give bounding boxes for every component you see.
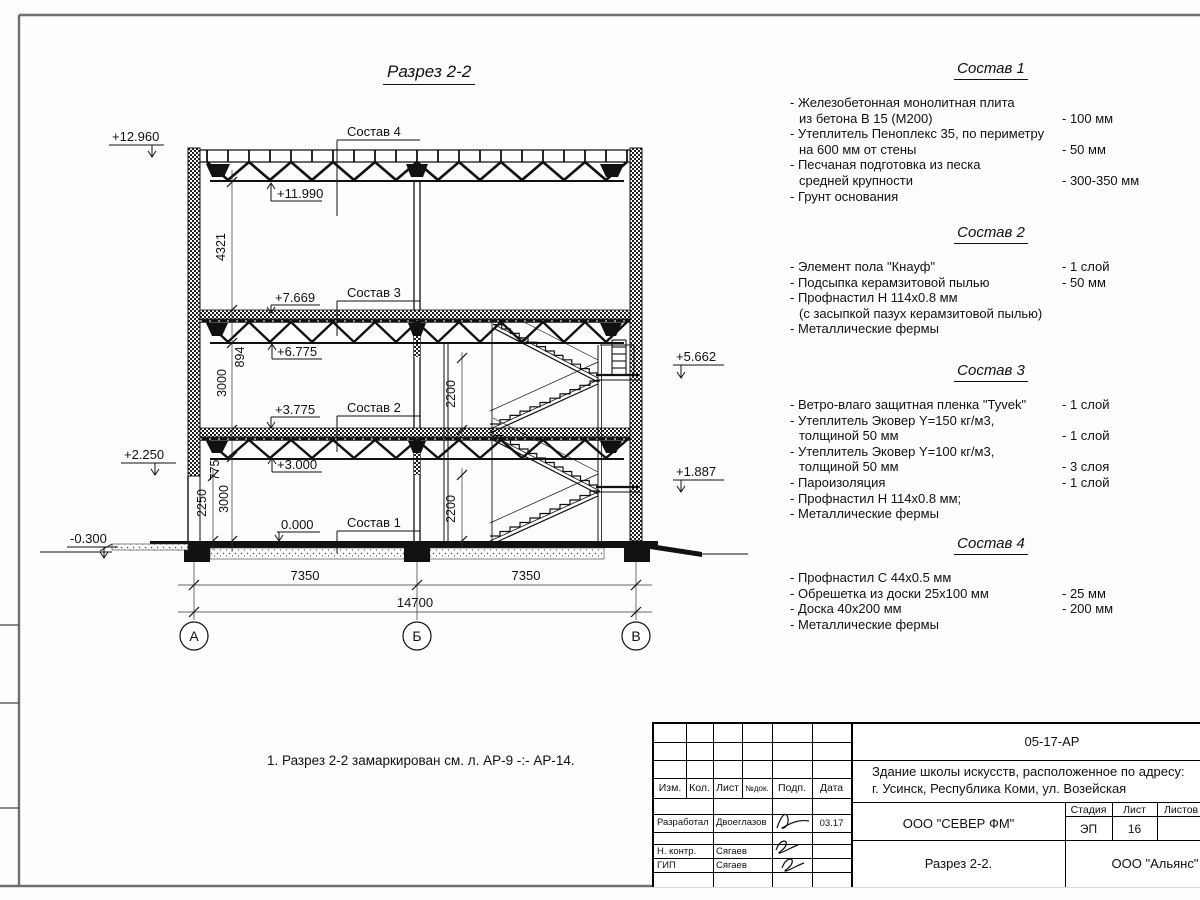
dim-7350-right: 7350 (512, 568, 541, 583)
dim-14700: 14700 (397, 595, 433, 610)
comp-line: - Обрешетка из доски 25х100 мм (790, 586, 1062, 602)
tb-sheet-title: Разрез 2-2. (852, 856, 1065, 871)
svg-text:+3.000: +3.000 (277, 457, 317, 472)
dim-7350-left: 7350 (291, 568, 320, 583)
svg-text:+3.775: +3.775 (275, 402, 315, 417)
signature-developer (774, 808, 812, 834)
comp-line: толщиной 50 мм (790, 428, 1062, 444)
dim-3000-lower: 3000 (217, 485, 231, 513)
title-block: Изм. Кол. Лист №док. Подп. Дата Разработ… (652, 722, 1200, 887)
svg-text:+1.887: +1.887 (676, 464, 716, 479)
svg-text:+5.662: +5.662 (676, 349, 716, 364)
comp-line: - Утеплитель Пеноплекс 35, по периметру (790, 126, 1062, 142)
signature-gip (770, 836, 814, 880)
elevation-ground: 0.000 (275, 517, 320, 541)
elevation-stair-lower: +1.887 (673, 464, 724, 492)
tb-name-developer: Двоеглазов (716, 817, 767, 828)
comp-line: - Ветро-влаго защитная пленка "Tyvek" (790, 397, 1062, 413)
frame-margin-cells (0, 625, 19, 808)
tb-sheets-label: Листов (1164, 804, 1198, 816)
dim-2200-upper: 2200 (444, 380, 458, 408)
comp-line: (с засыпкой пазух керамзитовой пылью) (790, 306, 1062, 322)
comp-line: - Профнастил Н 114х0.8 мм (790, 290, 1062, 306)
comp-line: - Металлические фермы (790, 617, 1062, 633)
tb-stage-label: Стадия (1065, 804, 1112, 816)
elevation-parapet: +12.960 (109, 129, 164, 157)
tb-col-list: Лист (713, 782, 742, 794)
tb-col-ndok: №док. (742, 784, 772, 793)
callout-sostav-2: Состав 2 (347, 400, 401, 415)
comp-line: на 600 мм от стены (790, 142, 1062, 158)
dim-775: 775 (208, 460, 222, 481)
composition-block-1: Состав 1 - Железобетонная монолитная пли… (790, 60, 1192, 204)
comp-line: из бетона В 15 (М200) (790, 111, 1062, 127)
tb-col-podp: Подп. (772, 782, 812, 794)
svg-text:+6.775: +6.775 (277, 344, 317, 359)
tb-name-gip: Сягаев (716, 860, 747, 871)
comp-line: - Профнастил Н 114х0.8 мм; (790, 491, 1062, 507)
callout-sostav-3: Состав 3 (347, 285, 401, 300)
elevation-roof-bottom: +11.990 (267, 183, 323, 201)
svg-text:+2.250: +2.250 (124, 447, 164, 462)
svg-text:+7.669: +7.669 (275, 290, 315, 305)
composition-1-title: Состав 1 (954, 60, 1028, 80)
callout-sostav-4: Состав 4 (347, 124, 401, 139)
axis-b-label: Б (412, 628, 421, 644)
tb-date-developer: 03.17 (812, 818, 851, 829)
comp-line: - Элемент пола "Кнауф" (790, 259, 1062, 275)
tb-contractor: ООО "Альянс" (1065, 856, 1200, 871)
comp-line: средней крупности (790, 173, 1062, 189)
drawing-title: Разрез 2-2 (383, 62, 475, 85)
comp-line: - Грунт основания (790, 189, 1062, 205)
elevation-stair-upper: +5.662 (673, 349, 724, 378)
composition-3-title: Состав 3 (954, 362, 1028, 382)
composition-callouts: Состав 4 Состав 3 Состав 2 Состав 1 (347, 124, 401, 530)
composition-block-3: Состав 3 - Ветро-влаго защитная пленка "… (790, 362, 1192, 522)
tb-org: ООО "СЕВЕР ФМ" (852, 816, 1065, 831)
svg-text:+11.990: +11.990 (277, 186, 323, 201)
roof-truss (200, 150, 630, 181)
comp-line: - Металлические фермы (790, 321, 1062, 337)
comp-line: - Профнастил С 44х0.5 мм (790, 570, 1062, 586)
svg-text:0.000: 0.000 (281, 517, 314, 532)
drawing-note: 1. Разрез 2-2 замаркирован см. л. АР-9 -… (267, 753, 575, 768)
axis-bubbles: А Б В (180, 622, 650, 650)
tb-col-data: Дата (812, 782, 851, 794)
bottom-dimensions (178, 562, 652, 620)
tb-stage-value: ЭП (1065, 822, 1112, 836)
elevation-floor1-bottom: +3.000 (268, 457, 322, 472)
comp-line: - Пароизоляция (790, 475, 1062, 491)
tb-role-developer: Разработал (657, 817, 709, 828)
tb-role-ncontrol: Н. контр. (657, 846, 696, 857)
elevation-left-mid: +2.250 (121, 447, 176, 475)
composition-block-4: Состав 4 - Профнастил С 44х0.5 мм - Обре… (790, 535, 1192, 632)
callout-sostav-1: Состав 1 (347, 515, 401, 530)
tb-project-line2: г. Усинск, Республика Коми, ул. Возейска… (872, 781, 1126, 796)
comp-line: - Доска 40х200 мм (790, 601, 1062, 617)
vertical-dim-labels: 4321 894 3000 775 3000 2250 2200 2200 (195, 233, 458, 523)
comp-line: толщиной 50 мм (790, 459, 1062, 475)
comp-line: - Утеплитель Эковер Y=150 кг/м3, (790, 413, 1062, 429)
dim-894: 894 (233, 347, 247, 368)
svg-text:+12.960: +12.960 (112, 129, 159, 144)
svg-text:-0.300: -0.300 (70, 531, 107, 546)
comp-line: - Утеплитель Эковер Y=100 кг/м3, (790, 444, 1062, 460)
tb-sheet-label: Лист (1112, 804, 1157, 816)
comp-line: - Подсыпка керамзитовой пылью (790, 275, 1062, 291)
tb-role-gip: ГИП (657, 860, 676, 871)
tb-col-izm: Изм. (654, 782, 686, 794)
tb-project-line1: Здание школы искусств, расположенное по … (872, 764, 1185, 779)
elevation-floor1-top: +3.775 (267, 402, 320, 428)
composition-leaders (337, 140, 420, 553)
dim-4321: 4321 (214, 233, 228, 261)
axis-a-label: А (189, 628, 199, 644)
tb-col-kol: Кол. (686, 782, 713, 794)
comp-line: - Железобетонная монолитная плита (790, 95, 1062, 111)
tb-doc-code: 05-17-АР (852, 734, 1200, 749)
elevation-floor2-top: +7.669 (267, 290, 320, 313)
dimension-chain-stairs (457, 352, 467, 548)
bottom-dim-labels: 7350 7350 14700 (291, 568, 541, 610)
dim-3000-upper: 3000 (215, 369, 229, 397)
comp-line: - Металлические фермы (790, 506, 1062, 522)
composition-4-title: Состав 4 (954, 535, 1028, 555)
comp-line: - Песчаная подготовка из песка (790, 157, 1062, 173)
elevation-floor2-bottom: +6.775 (268, 344, 322, 359)
composition-block-2: Состав 2 - Элемент пола "Кнауф"- 1 слой … (790, 224, 1192, 337)
tb-name-ncontrol: Сягаев (716, 846, 747, 857)
foundation (40, 541, 748, 562)
dim-2200-lower: 2200 (444, 495, 458, 523)
tb-sheet-value: 16 (1112, 822, 1157, 836)
composition-2-title: Состав 2 (954, 224, 1028, 244)
dim-2250: 2250 (195, 489, 209, 517)
axis-v-label: В (631, 628, 640, 644)
